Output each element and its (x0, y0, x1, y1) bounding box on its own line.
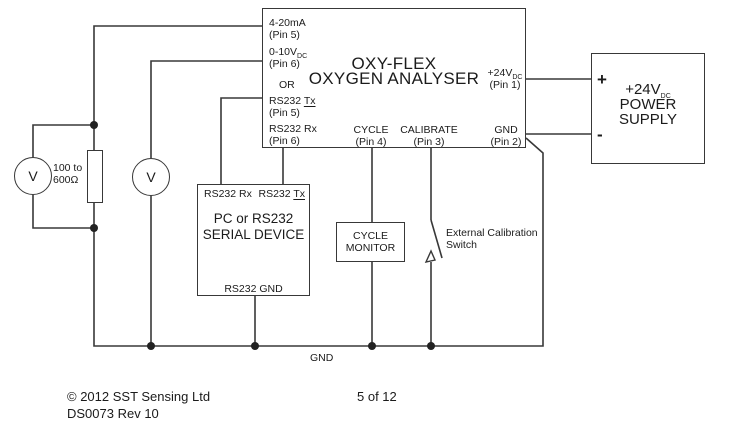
switch-blade (431, 220, 442, 258)
junction-dot (90, 224, 98, 232)
external-calibration-switch-label: External Calibration Switch (446, 227, 538, 251)
footer-page-number: 5 of 12 (357, 389, 397, 406)
resistor-symbol (87, 150, 103, 203)
wiring-diagram: OXY-FLEX OXYGEN ANALYSER 4-20mA (Pin 5) … (0, 0, 747, 435)
junction-dot (147, 342, 155, 350)
serial-tx-label: RS232 Tx (258, 188, 305, 200)
junction-dot (90, 121, 98, 129)
wire-rs232-tx (221, 98, 262, 184)
gnd-bus-label: GND (310, 352, 333, 364)
wire-4-20ma (94, 26, 262, 125)
junction-dot (251, 342, 259, 350)
minus-terminal: - (597, 128, 603, 142)
wire-voltmeter1-bottom (33, 195, 94, 228)
voltmeter-1: V (14, 157, 52, 195)
wire-voltmeter1-top (33, 125, 94, 157)
pin-calibrate-label: CALIBRATE (Pin 3) (400, 124, 458, 148)
switch-contact-icon (426, 251, 435, 262)
pin-rs232-rx-label: RS232 Rx (Pin 6) (269, 123, 317, 147)
or-label: OR (279, 79, 295, 91)
resistor-value-label: 100 to 600Ω (53, 162, 82, 186)
wire-0-10v (151, 61, 262, 158)
footer-docref: DS0073 Rev 10 (67, 406, 210, 423)
pin-24v-label: +24VDC (Pin 1) (483, 67, 527, 91)
pin-cycle-label: CYCLE (Pin 4) (353, 124, 388, 148)
serial-device-box: RS232 Rx RS232 Tx PC or RS232 SERIAL DEV… (197, 184, 310, 296)
serial-rx-label: RS232 Rx (204, 188, 252, 200)
serial-device-name: PC or RS232 SERIAL DEVICE (198, 211, 309, 243)
footer-copyright: © 2012 SST Sensing Ltd DS0073 Rev 10 (67, 389, 210, 422)
serial-gnd-label: RS232 GND (198, 283, 309, 295)
cycle-monitor-label: CYCLE MONITOR (337, 230, 404, 254)
junction-dot (427, 342, 435, 350)
pin-gnd-label: GND (Pin 2) (491, 124, 522, 148)
voltmeter-2: V (132, 158, 170, 196)
cycle-monitor-box: CYCLE MONITOR (336, 222, 405, 262)
oxy-flex-analyser-box: OXY-FLEX OXYGEN ANALYSER 4-20mA (Pin 5) … (262, 8, 526, 148)
pin-4-20ma-label: 4-20mA (Pin 5) (269, 17, 306, 41)
power-supply-box: + - +24VDC POWER SUPPLY (591, 53, 705, 164)
pin-0-10v-label: 0-10VDC (Pin 6) (269, 46, 307, 70)
junction-dot (368, 342, 376, 350)
power-supply-label: +24VDC POWER SUPPLY (592, 82, 704, 127)
pin-rs232-tx-label: RS232 Tx (Pin 5) (269, 95, 316, 119)
